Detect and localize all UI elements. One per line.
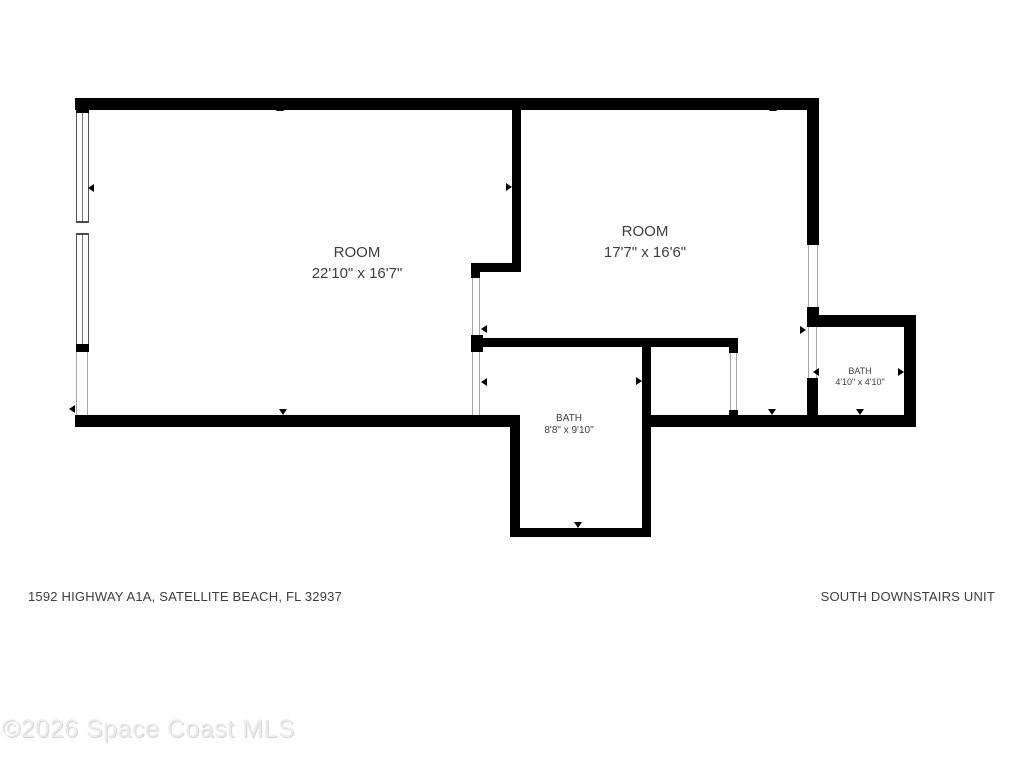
- wall-bath-bottom: [510, 528, 651, 537]
- measurement-arrow-icon: [481, 378, 487, 386]
- door-opening-bath-jamb: [472, 352, 473, 415]
- wall-closet-right-top-stub: [729, 338, 738, 353]
- room-dimensions: 4'10" x 4'10": [835, 377, 884, 388]
- door-opening-smallbath-jamb: [808, 327, 809, 378]
- window-icon: [76, 110, 89, 352]
- measurement-arrow-icon: [856, 321, 864, 327]
- door-opening-right-wall-jamb: [817, 245, 818, 307]
- wall-exterior-right-upper: [807, 98, 819, 245]
- room-label-left: ROOM 22'10" x 16'7": [312, 242, 403, 284]
- floor-plan-canvas: ROOM 22'10" x 16'7" ROOM 17'7" x 16'6" B…: [0, 0, 1024, 768]
- measurement-arrow-icon: [813, 368, 819, 376]
- door-opening-divider-jamb: [479, 278, 480, 335]
- wall-bath-left: [510, 415, 520, 537]
- wall-exterior-bottom-right: [642, 415, 916, 427]
- window-mullion: [76, 221, 89, 235]
- room-dimensions: 8'8" x 9'10": [544, 425, 593, 437]
- measurement-arrow-icon: [636, 377, 642, 385]
- wall-smallbath-right: [904, 315, 916, 427]
- measurement-arrow-icon: [506, 183, 512, 191]
- measurement-arrow-icon: [574, 340, 582, 346]
- wall-closet-right-bottom-stub: [729, 410, 738, 415]
- door-opening-right-wall-jamb: [808, 245, 809, 307]
- door-opening-left-wall-jamb: [87, 352, 88, 415]
- door-opening-closet-jamb: [736, 353, 737, 410]
- measurement-arrow-icon: [279, 409, 287, 415]
- room-label-bath-middle: BATH 8'8" x 9'10": [544, 413, 593, 437]
- room-name: ROOM: [604, 221, 686, 242]
- door-opening-bath-jamb: [479, 352, 480, 415]
- unit-title: SOUTH DOWNSTAIRS UNIT: [821, 589, 995, 604]
- wall-closet-top: [651, 338, 737, 347]
- measurement-arrow-icon: [88, 184, 94, 192]
- measurement-arrow-icon: [898, 368, 904, 376]
- room-dimensions: 17'7" x 16'6": [604, 242, 686, 263]
- measurement-arrow-icon: [800, 326, 806, 334]
- measurement-arrow-icon: [276, 105, 284, 111]
- address-text: 1592 HIGHWAY A1A, SATELLITE BEACH, FL 32…: [28, 589, 342, 604]
- wall-exterior-bottom-left: [75, 415, 520, 427]
- measurement-arrow-icon: [768, 409, 776, 415]
- room-name: ROOM: [312, 242, 403, 263]
- wall-bath-right: [642, 338, 651, 537]
- door-opening-divider-jamb: [472, 278, 473, 335]
- measurement-arrow-icon: [69, 405, 75, 413]
- measurement-arrow-icon: [574, 522, 582, 528]
- wall-room-divider-stub: [471, 263, 480, 278]
- window-cap-bottom: [76, 344, 89, 352]
- measurement-arrow-icon: [481, 325, 487, 333]
- room-label-right: ROOM 17'7" x 16'6": [604, 221, 686, 263]
- room-label-bath-small: BATH 4'10" x 4'10": [835, 366, 884, 388]
- wall-smallbath-left-stub: [807, 378, 818, 415]
- wall-room-divider: [512, 110, 521, 263]
- room-dimensions: 22'10" x 16'7": [312, 263, 403, 284]
- measurement-arrow-icon: [856, 409, 864, 415]
- measurement-arrow-icon: [769, 105, 777, 111]
- room-name: BATH: [544, 413, 593, 425]
- room-name: BATH: [835, 366, 884, 377]
- door-opening-closet-jamb: [730, 353, 731, 410]
- wall-exterior-top: [75, 98, 819, 110]
- window-cap-top: [76, 110, 89, 113]
- watermark-text: ©2026 Space Coast MLS: [2, 715, 295, 744]
- door-opening-left-wall-jamb: [76, 352, 77, 415]
- wall-bath-top: [471, 338, 642, 347]
